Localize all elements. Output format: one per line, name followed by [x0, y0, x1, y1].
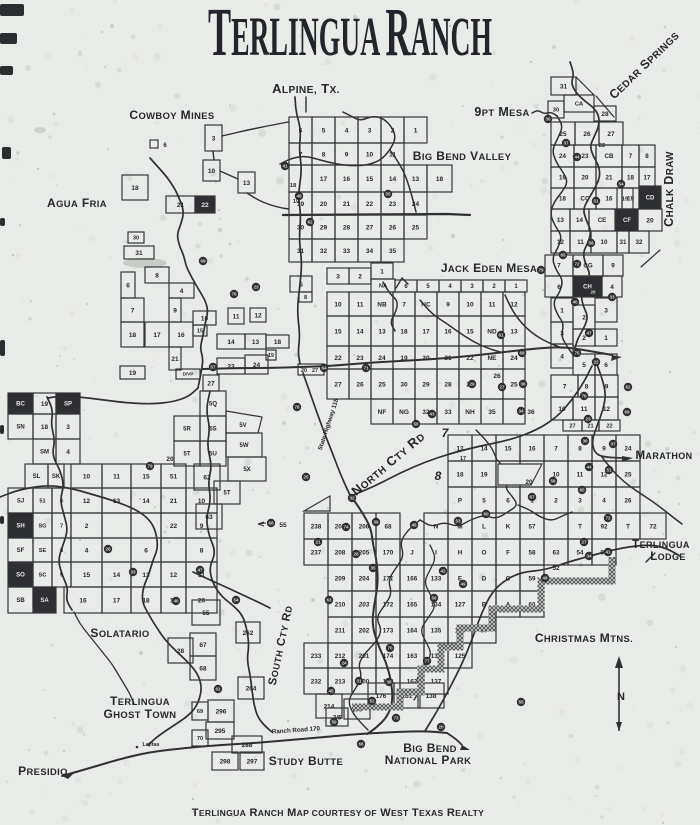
- svg-text:SF: SF: [17, 548, 25, 554]
- svg-text:15: 15: [197, 329, 203, 335]
- svg-text:12: 12: [83, 498, 91, 505]
- svg-text:TERLINGUA: TERLINGUA: [110, 694, 170, 708]
- svg-text:CG: CG: [583, 263, 592, 270]
- svg-text:5R: 5R: [183, 427, 191, 433]
- svg-text:28: 28: [444, 381, 452, 388]
- svg-text:41: 41: [282, 164, 288, 169]
- svg-text:6: 6: [126, 282, 130, 289]
- svg-text:66: 66: [358, 742, 364, 747]
- svg-text:19: 19: [41, 401, 49, 408]
- svg-text:T: T: [626, 523, 630, 530]
- svg-text:53: 53: [455, 519, 461, 524]
- svg-text:TERLINGUA RANCH MAP COURTESY O: TERLINGUA RANCH MAP COURTESY OF WEST TEX…: [192, 807, 484, 819]
- svg-text:18: 18: [290, 183, 297, 189]
- svg-text:138: 138: [426, 693, 437, 700]
- svg-text:CHRISTMAS MTNS.: CHRISTMAS MTNS.: [535, 631, 633, 645]
- svg-text:8: 8: [304, 295, 307, 301]
- svg-text:NF: NF: [378, 409, 387, 416]
- svg-text:62: 62: [203, 474, 211, 481]
- svg-text:20: 20: [301, 368, 307, 374]
- svg-text:25: 25: [510, 381, 518, 388]
- svg-text:7: 7: [131, 307, 135, 314]
- svg-text:165: 165: [407, 601, 418, 608]
- svg-text:74: 74: [343, 525, 349, 530]
- svg-text:27: 27: [581, 540, 587, 545]
- svg-text:NC: NC: [421, 301, 431, 308]
- svg-text:48: 48: [542, 576, 548, 581]
- svg-text:5: 5: [482, 497, 486, 504]
- svg-text:37: 37: [610, 442, 616, 447]
- svg-text:21: 21: [171, 356, 179, 363]
- svg-text:9: 9: [173, 307, 177, 314]
- svg-text:44: 44: [574, 155, 580, 160]
- svg-text:70: 70: [387, 646, 393, 651]
- svg-text:72: 72: [649, 523, 657, 530]
- svg-text:27: 27: [207, 380, 215, 387]
- svg-text:27: 27: [312, 368, 318, 374]
- svg-text:295: 295: [215, 728, 226, 735]
- svg-text:30: 30: [545, 117, 551, 122]
- svg-text:26: 26: [389, 224, 397, 231]
- svg-text:50: 50: [413, 422, 419, 427]
- svg-text:27: 27: [366, 224, 374, 231]
- svg-text:2: 2: [85, 523, 89, 530]
- svg-text:SP: SP: [64, 402, 72, 408]
- svg-text:18: 18: [436, 176, 444, 183]
- svg-text:7: 7: [557, 263, 561, 270]
- svg-text:20: 20: [320, 201, 328, 208]
- svg-text:18: 18: [400, 328, 408, 335]
- svg-text:5: 5: [582, 362, 586, 369]
- svg-text:31: 31: [560, 83, 568, 90]
- svg-text:7: 7: [554, 445, 558, 452]
- svg-text:164: 164: [407, 627, 418, 634]
- svg-text:79: 79: [538, 268, 544, 273]
- svg-text:92: 92: [600, 523, 608, 530]
- svg-text:P: P: [458, 497, 462, 504]
- svg-text:28: 28: [353, 552, 359, 557]
- svg-text:170: 170: [383, 549, 394, 556]
- svg-text:SL: SL: [33, 474, 41, 480]
- svg-text:65: 65: [579, 488, 585, 493]
- svg-text:47: 47: [197, 568, 203, 573]
- svg-text:Lajitas: Lajitas: [142, 742, 159, 748]
- svg-text:22: 22: [466, 355, 474, 362]
- svg-text:69: 69: [200, 259, 206, 264]
- svg-text:23: 23: [582, 153, 589, 160]
- svg-text:297: 297: [247, 758, 258, 765]
- svg-text:134: 134: [431, 601, 442, 608]
- svg-text:2: 2: [391, 127, 395, 134]
- svg-text:2: 2: [582, 335, 586, 342]
- svg-text:262: 262: [243, 630, 254, 637]
- svg-text:35: 35: [370, 566, 376, 571]
- svg-text:D: D: [482, 575, 487, 582]
- svg-text:61: 61: [498, 333, 504, 338]
- svg-text:14: 14: [356, 328, 364, 335]
- svg-text:K: K: [506, 523, 511, 530]
- svg-text:47: 47: [586, 331, 592, 336]
- svg-text:SN: SN: [16, 425, 24, 431]
- svg-text:58: 58: [588, 241, 594, 246]
- svg-text:79: 79: [147, 464, 153, 469]
- svg-text:24: 24: [510, 355, 518, 362]
- svg-text:298: 298: [220, 758, 231, 765]
- svg-text:10: 10: [83, 473, 91, 480]
- svg-text:5X: 5X: [243, 467, 250, 473]
- svg-text:NA: NA: [379, 284, 388, 290]
- svg-text:13: 13: [557, 217, 564, 224]
- svg-text:BIG BEND VALLEY: BIG BEND VALLEY: [413, 149, 512, 163]
- svg-text:203: 203: [358, 601, 370, 608]
- svg-text:32: 32: [636, 239, 643, 246]
- svg-text:214: 214: [324, 703, 335, 710]
- svg-text:30: 30: [553, 108, 559, 114]
- svg-text:8: 8: [645, 153, 649, 160]
- svg-text:17: 17: [644, 175, 651, 182]
- svg-text:D/VP: D/VP: [183, 372, 194, 377]
- svg-text:1: 1: [604, 335, 608, 342]
- svg-text:35: 35: [389, 248, 397, 255]
- svg-text:206: 206: [359, 523, 370, 530]
- svg-text:22: 22: [170, 523, 178, 530]
- svg-text:22: 22: [599, 143, 605, 149]
- svg-text:3: 3: [560, 330, 564, 337]
- svg-text:19: 19: [480, 471, 488, 478]
- svg-text:31: 31: [135, 250, 143, 257]
- svg-text:135: 135: [431, 627, 442, 634]
- svg-text:28: 28: [177, 648, 185, 655]
- svg-text:3: 3: [66, 424, 70, 431]
- svg-text:28: 28: [601, 111, 609, 118]
- svg-text:6: 6: [60, 499, 63, 505]
- svg-text:8: 8: [578, 445, 582, 452]
- svg-text:TERLINGUA RANCH: TERLINGUA RANCH: [208, 0, 492, 70]
- svg-text:16: 16: [177, 332, 185, 339]
- svg-text:51: 51: [170, 473, 178, 480]
- svg-text:SA: SA: [40, 598, 49, 604]
- svg-text:5T: 5T: [183, 452, 190, 458]
- svg-text:62: 62: [307, 220, 313, 225]
- svg-text:34: 34: [586, 554, 592, 559]
- svg-text:24: 24: [412, 201, 420, 208]
- svg-text:6: 6: [557, 284, 561, 291]
- svg-text:11: 11: [489, 301, 496, 308]
- svg-text:9: 9: [605, 383, 609, 390]
- svg-text:CB: CB: [605, 153, 614, 160]
- svg-text:F: F: [506, 549, 510, 556]
- svg-text:15: 15: [142, 473, 150, 480]
- svg-text:22: 22: [593, 360, 599, 365]
- svg-text:CA: CA: [575, 102, 584, 108]
- svg-text:17: 17: [153, 332, 161, 339]
- svg-text:12: 12: [510, 301, 518, 308]
- svg-text:72: 72: [574, 262, 580, 267]
- svg-text:24: 24: [559, 153, 566, 160]
- svg-text:26: 26: [493, 373, 501, 380]
- svg-text:32: 32: [349, 496, 355, 501]
- svg-text:65: 65: [560, 253, 566, 258]
- svg-text:27: 27: [607, 131, 615, 138]
- svg-text:3: 3: [604, 307, 608, 314]
- svg-text:11: 11: [233, 313, 240, 320]
- svg-text:172: 172: [383, 601, 394, 608]
- svg-text:51: 51: [606, 468, 612, 473]
- svg-text:28: 28: [343, 224, 351, 231]
- svg-text:20: 20: [198, 597, 206, 604]
- svg-text:4: 4: [610, 284, 614, 291]
- svg-text:30: 30: [582, 439, 588, 444]
- svg-text:237: 237: [311, 549, 322, 556]
- svg-text:T: T: [578, 523, 582, 530]
- svg-text:36: 36: [520, 382, 526, 387]
- svg-text:69: 69: [624, 410, 630, 415]
- svg-text:13: 13: [113, 498, 121, 505]
- svg-text:238: 238: [311, 523, 322, 530]
- svg-text:166: 166: [407, 575, 418, 582]
- svg-text:24: 24: [378, 355, 386, 362]
- svg-text:29: 29: [320, 224, 328, 231]
- svg-text:2: 2: [582, 314, 586, 321]
- svg-text:13: 13: [510, 328, 518, 335]
- svg-text:32: 32: [320, 248, 328, 255]
- svg-text:69: 69: [197, 709, 203, 715]
- svg-text:9PT MESA: 9PT MESA: [474, 105, 529, 119]
- svg-text:60: 60: [483, 512, 489, 517]
- svg-text:76: 76: [231, 292, 237, 297]
- svg-text:SM: SM: [40, 450, 49, 456]
- svg-text:54: 54: [618, 182, 624, 187]
- svg-text:GHOST TOWN: GHOST TOWN: [104, 707, 177, 721]
- svg-text:125: 125: [455, 653, 466, 660]
- svg-text:SJ: SJ: [17, 499, 24, 505]
- svg-text:54: 54: [576, 549, 584, 556]
- svg-text:16: 16: [444, 328, 452, 335]
- svg-text:30: 30: [400, 381, 408, 388]
- svg-text:39: 39: [373, 520, 379, 525]
- svg-text:19: 19: [559, 175, 566, 182]
- svg-text:52: 52: [369, 699, 375, 704]
- svg-text:29: 29: [422, 381, 430, 388]
- svg-text:7: 7: [299, 151, 303, 158]
- svg-text:3: 3: [578, 497, 582, 504]
- svg-text:SG: SG: [38, 524, 46, 530]
- svg-text:13: 13: [243, 180, 251, 187]
- svg-text:33: 33: [130, 570, 136, 575]
- svg-text:63: 63: [552, 549, 560, 556]
- svg-text:13: 13: [378, 328, 386, 335]
- svg-text:13: 13: [252, 339, 260, 346]
- svg-text:201: 201: [359, 653, 370, 660]
- svg-text:7: 7: [60, 524, 63, 530]
- svg-text:18: 18: [627, 175, 634, 182]
- svg-text:SB: SB: [16, 598, 25, 604]
- svg-text:26: 26: [624, 497, 632, 504]
- svg-text:12: 12: [170, 572, 178, 579]
- svg-text:SE: SE: [39, 548, 47, 554]
- svg-text:57: 57: [528, 523, 536, 530]
- svg-text:JACK EDEN MESA: JACK EDEN MESA: [441, 261, 537, 275]
- svg-text:24: 24: [341, 661, 347, 666]
- svg-text:59: 59: [331, 720, 337, 725]
- svg-text:22: 22: [201, 202, 209, 209]
- svg-text:7: 7: [402, 301, 406, 308]
- svg-text:5S: 5S: [209, 427, 216, 433]
- svg-text:296: 296: [216, 708, 227, 715]
- svg-text:51: 51: [39, 499, 45, 505]
- svg-text:14: 14: [389, 176, 397, 183]
- svg-text:AGUA FRIA: AGUA FRIA: [47, 196, 107, 210]
- svg-text:26: 26: [105, 547, 111, 552]
- svg-text:5W: 5W: [240, 443, 249, 449]
- svg-text:9: 9: [602, 445, 606, 452]
- svg-text:BC: BC: [16, 402, 25, 408]
- svg-text:22: 22: [334, 355, 342, 362]
- svg-text:15: 15: [504, 445, 512, 452]
- svg-text:137: 137: [431, 678, 442, 685]
- svg-text:NE: NE: [487, 355, 497, 362]
- svg-text:58: 58: [550, 479, 556, 484]
- svg-text:15: 15: [334, 328, 342, 335]
- svg-text:174: 174: [383, 653, 394, 660]
- svg-text:64: 64: [321, 366, 327, 371]
- svg-text:13: 13: [456, 445, 464, 452]
- svg-text:78: 78: [294, 405, 300, 410]
- svg-text:14: 14: [480, 445, 488, 452]
- svg-text:67: 67: [529, 495, 535, 500]
- svg-text:11: 11: [577, 239, 584, 246]
- svg-text:2: 2: [358, 273, 362, 280]
- svg-text:17: 17: [422, 328, 430, 335]
- svg-text:SO: SO: [16, 573, 25, 579]
- svg-text:COWBOY MINES: COWBOY MINES: [129, 108, 214, 122]
- svg-text:8: 8: [585, 383, 589, 390]
- svg-text:SC: SC: [39, 573, 47, 579]
- svg-text:59: 59: [528, 575, 536, 582]
- svg-text:25: 25: [378, 381, 386, 388]
- svg-text:8: 8: [60, 548, 63, 554]
- svg-text:NH: NH: [465, 409, 475, 416]
- svg-text:J: J: [410, 549, 414, 556]
- svg-text:29: 29: [469, 382, 475, 387]
- svg-text:10: 10: [466, 301, 474, 308]
- svg-text:15: 15: [466, 328, 474, 335]
- svg-text:CE: CE: [598, 217, 607, 224]
- svg-text:24: 24: [253, 362, 261, 369]
- svg-text:55: 55: [385, 192, 391, 197]
- svg-text:15: 15: [366, 176, 374, 183]
- svg-text:11: 11: [577, 471, 584, 478]
- svg-text:176: 176: [376, 693, 387, 700]
- svg-text:71: 71: [363, 366, 369, 371]
- svg-text:20: 20: [422, 355, 430, 362]
- svg-text:17: 17: [460, 456, 466, 462]
- svg-text:MARATHON: MARATHON: [635, 450, 692, 462]
- svg-text:CD: CD: [646, 196, 655, 202]
- svg-text:63: 63: [326, 598, 332, 603]
- svg-text:25: 25: [412, 224, 420, 231]
- svg-text:208: 208: [335, 549, 346, 556]
- svg-text:NB: NB: [377, 301, 387, 308]
- svg-text:58: 58: [528, 549, 536, 556]
- svg-text:45: 45: [328, 689, 334, 694]
- svg-text:4: 4: [180, 288, 184, 295]
- svg-text:68: 68: [519, 351, 525, 356]
- svg-text:11: 11: [389, 151, 396, 158]
- svg-text:30: 30: [297, 224, 305, 231]
- svg-text:9: 9: [60, 573, 63, 579]
- svg-text:57: 57: [210, 365, 216, 370]
- svg-text:18: 18: [41, 424, 49, 431]
- svg-text:16: 16: [528, 445, 536, 452]
- svg-text:43: 43: [429, 412, 435, 417]
- svg-text:18: 18: [274, 339, 282, 346]
- svg-text:20: 20: [166, 456, 174, 463]
- svg-text:21: 21: [606, 175, 613, 182]
- svg-text:10: 10: [201, 315, 209, 322]
- svg-text:31: 31: [620, 239, 627, 246]
- svg-text:8: 8: [155, 272, 159, 279]
- svg-text:25: 25: [303, 475, 309, 480]
- svg-text:264: 264: [246, 685, 257, 692]
- svg-text:20: 20: [582, 175, 589, 182]
- svg-text:9: 9: [446, 301, 450, 308]
- svg-text:52: 52: [552, 565, 560, 572]
- svg-text:16: 16: [79, 597, 87, 604]
- svg-text:3: 3: [212, 135, 216, 142]
- svg-text:202: 202: [359, 627, 370, 634]
- svg-text:NATIONAL PARK: NATIONAL PARK: [385, 753, 472, 767]
- svg-text:76: 76: [581, 394, 587, 399]
- svg-text:63: 63: [205, 514, 213, 521]
- svg-text:68: 68: [384, 523, 392, 530]
- svg-text:6: 6: [299, 127, 303, 134]
- svg-text:6: 6: [144, 547, 148, 554]
- svg-text:3: 3: [336, 273, 340, 280]
- svg-text:34: 34: [518, 409, 524, 414]
- svg-text:211: 211: [335, 627, 346, 634]
- svg-text:233: 233: [311, 653, 322, 660]
- svg-text:SH: SH: [16, 524, 24, 530]
- svg-text:42: 42: [440, 569, 446, 574]
- svg-text:27: 27: [334, 381, 342, 388]
- svg-text:205: 205: [359, 549, 370, 556]
- svg-text:37: 37: [563, 141, 569, 146]
- svg-text:ND: ND: [487, 328, 497, 335]
- svg-text:5T: 5T: [223, 491, 230, 497]
- svg-text:72: 72: [605, 516, 611, 521]
- svg-text:14: 14: [576, 217, 583, 224]
- svg-text:33: 33: [444, 409, 452, 416]
- svg-text:33: 33: [343, 248, 351, 255]
- svg-text:4: 4: [66, 449, 70, 456]
- svg-text:14: 14: [113, 572, 121, 579]
- svg-text:17: 17: [320, 176, 328, 183]
- svg-text:12: 12: [254, 312, 262, 319]
- svg-text:12: 12: [557, 239, 564, 246]
- svg-text:232: 232: [311, 678, 322, 685]
- svg-text:N: N: [617, 691, 625, 703]
- svg-text:5V: 5V: [239, 423, 246, 429]
- svg-text:18: 18: [456, 471, 464, 478]
- svg-text:173: 173: [383, 627, 394, 634]
- svg-text:14: 14: [227, 339, 235, 346]
- svg-text:62: 62: [625, 385, 631, 390]
- svg-text:4: 4: [85, 547, 89, 554]
- svg-text:40: 40: [572, 300, 578, 305]
- svg-text:27: 27: [499, 385, 505, 390]
- svg-text:PRESIDIO: PRESIDIO: [18, 764, 68, 778]
